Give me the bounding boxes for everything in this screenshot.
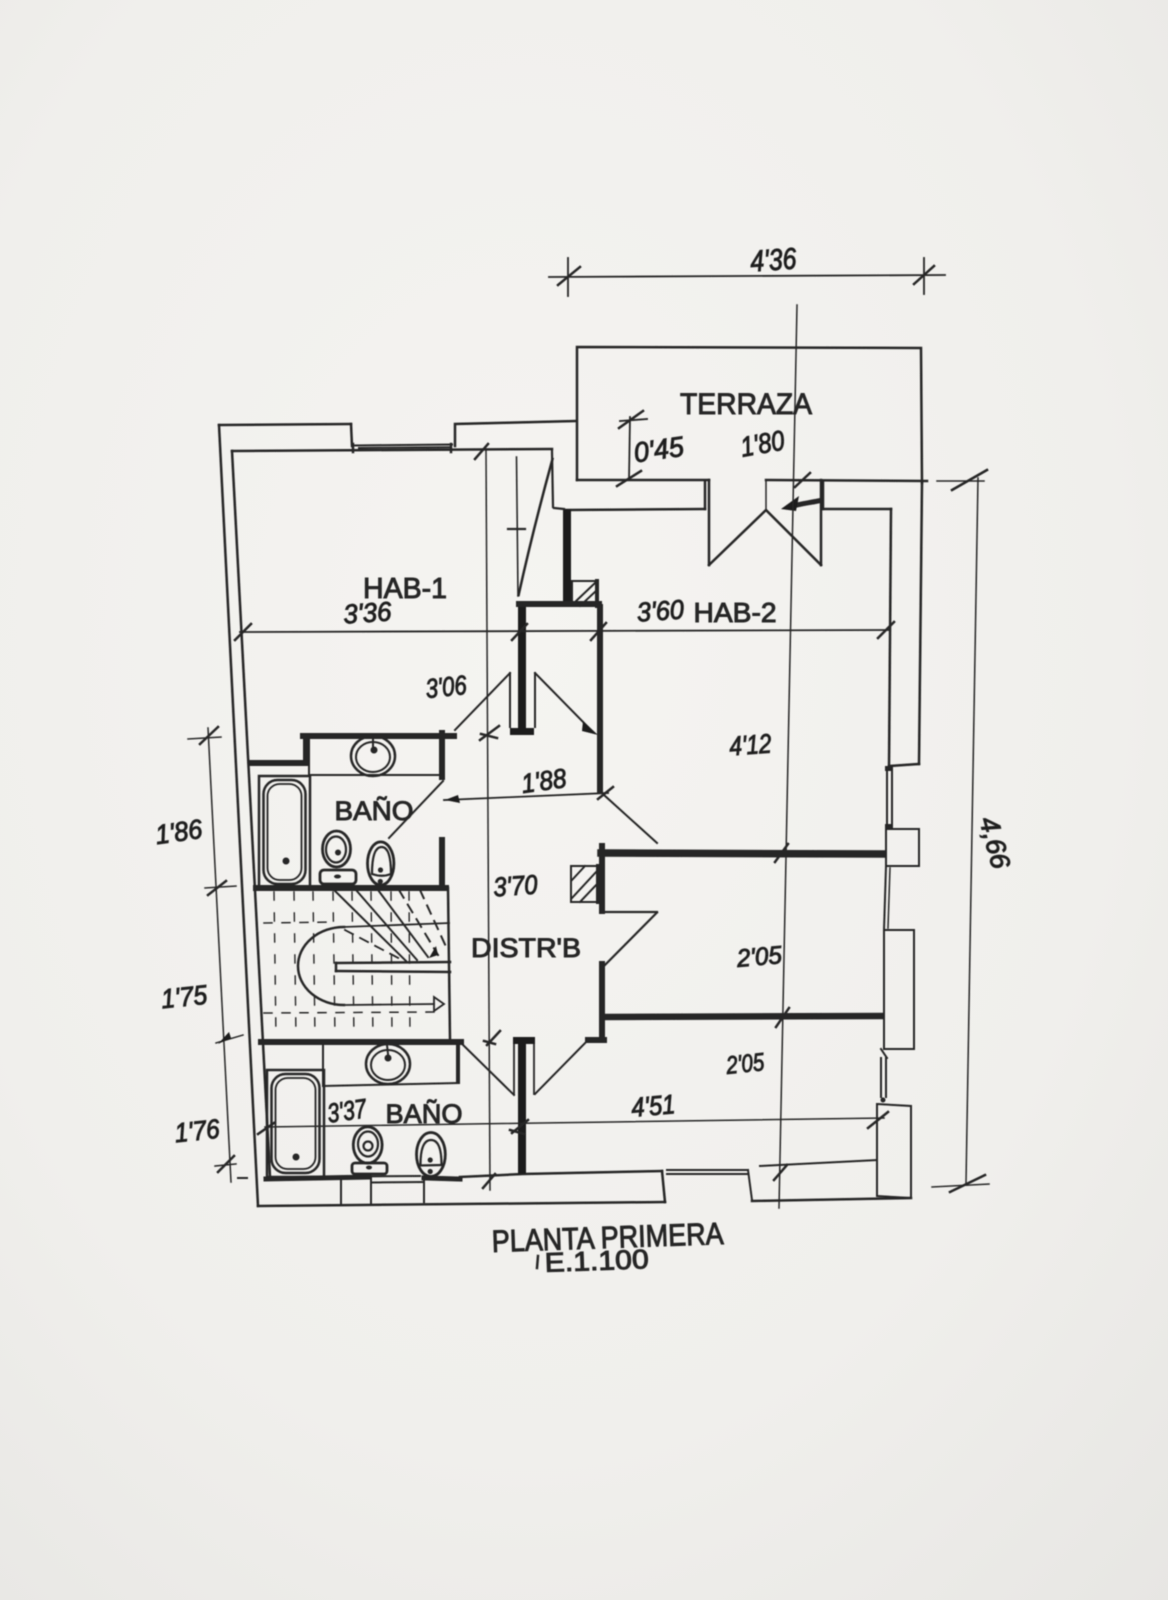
svg-text:1'76: 1'76 — [173, 1114, 222, 1149]
svg-text:E.1.100: E.1.100 — [544, 1244, 649, 1278]
svg-text:4'36: 4'36 — [749, 242, 797, 278]
svg-text:3'36: 3'36 — [342, 596, 393, 629]
svg-text:1'88: 1'88 — [519, 763, 568, 799]
svg-text:3'37: 3'37 — [325, 1093, 369, 1128]
svg-text:3'60: 3'60 — [636, 594, 685, 627]
svg-text:4'12: 4'12 — [728, 729, 772, 762]
svg-text:3'06: 3'06 — [424, 670, 469, 704]
svg-text:2'05: 2'05 — [724, 1048, 766, 1080]
svg-text:HAB-2: HAB-2 — [694, 597, 777, 628]
svg-text:4'51: 4'51 — [630, 1089, 676, 1123]
svg-text:3'70: 3'70 — [492, 870, 538, 903]
svg-text:TERRAZA: TERRAZA — [680, 388, 812, 421]
svg-text:BAÑO: BAÑO — [335, 795, 414, 826]
svg-text:2'05: 2'05 — [735, 941, 783, 973]
svg-text:DISTR'B: DISTR'B — [471, 933, 581, 963]
svg-text:1'75: 1'75 — [160, 980, 210, 1015]
